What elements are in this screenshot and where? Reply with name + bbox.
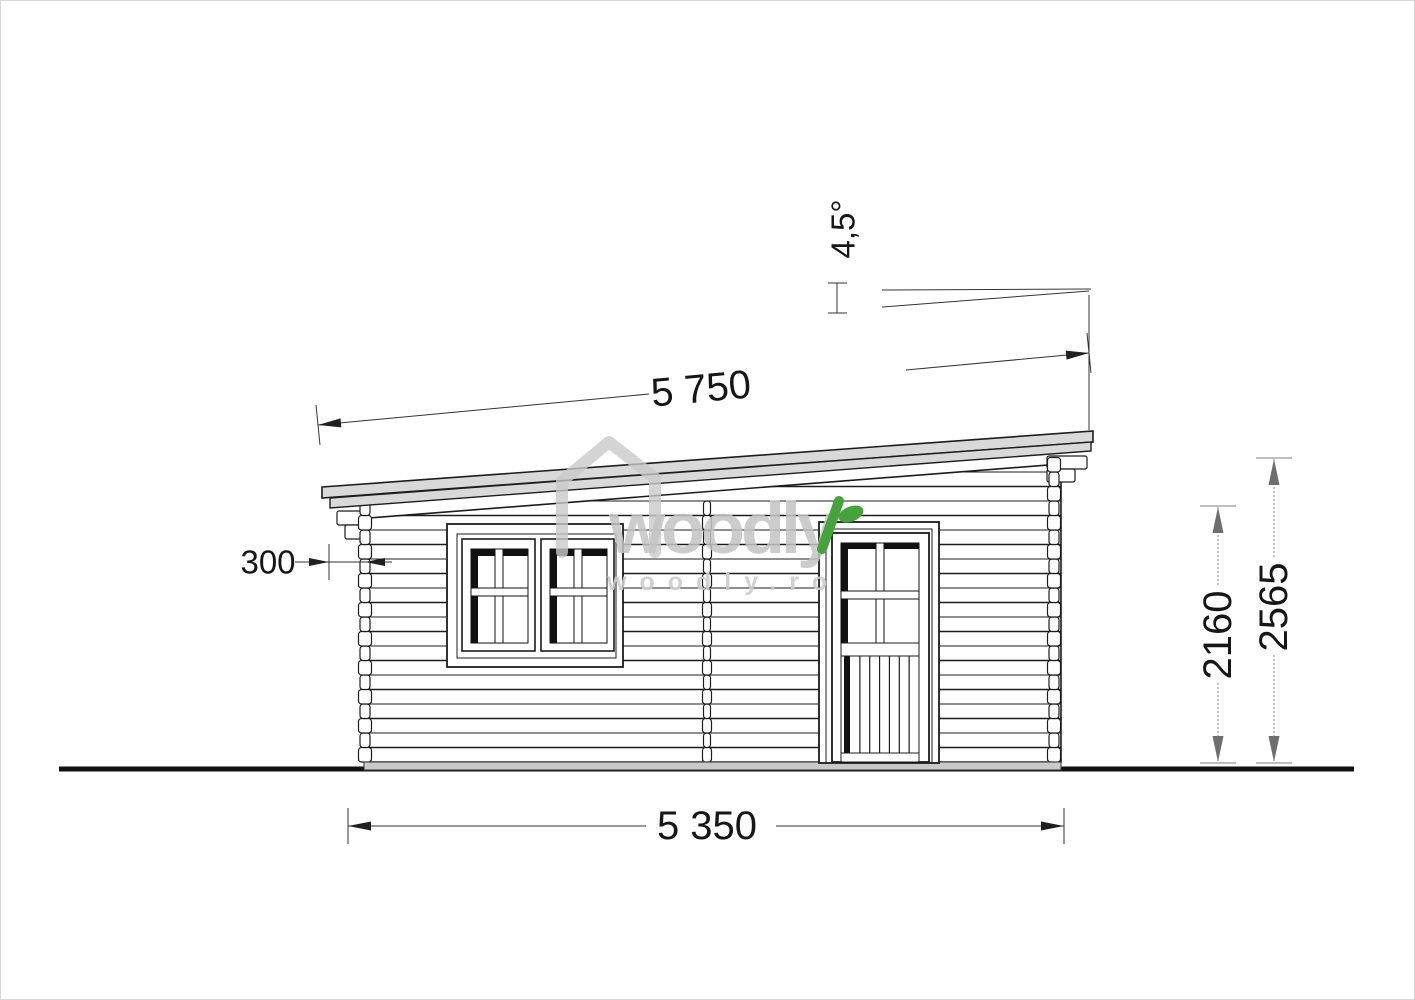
window-rail [550,588,607,596]
panel-shadow [844,656,850,753]
entrance-door [819,522,939,763]
log-end [360,617,370,632]
log-end [1049,646,1059,661]
log-end [1048,661,1061,676]
log-end [359,690,372,705]
log-end [703,748,712,763]
dim-label-roof-angle: 4,5° [825,199,862,258]
dim-arrow [1041,822,1064,831]
log-end [1048,690,1061,705]
window-left-sash [462,539,535,651]
log-end [1048,545,1061,560]
dimension-wall-height: 2160 [1196,506,1240,763]
log-end [704,646,711,661]
log-end [359,574,372,589]
log-end [359,748,372,763]
log-end [1049,472,1059,487]
dim-arrow [1066,351,1089,360]
log-end [1049,733,1059,748]
dim-arrow [309,558,329,566]
log-end [1049,675,1059,690]
log-end [1049,588,1059,603]
dim-arrow [348,822,371,831]
log-end [1048,719,1061,734]
dim-label-wall-length: 5 350 [657,804,757,848]
log-end [703,632,712,647]
double-window [447,524,623,667]
log-end [360,704,370,719]
dim-label-roof-length: 5 750 [649,362,753,415]
log-end [360,733,370,748]
watermark-brand: woodly [608,489,837,569]
log-end [359,603,372,618]
log-end [703,603,712,618]
dimension-roof-length: 5 750 [316,295,1091,445]
dimension-wall-length: 5 350 [348,804,1064,848]
dimension-roof-angle: 4,5° [825,199,1092,313]
watermark-domain: woodly.ro [606,568,840,596]
log-end [1048,487,1061,502]
dim-arrow [1213,507,1224,533]
dim-label-overhang: 300 [240,544,295,581]
log-end [1049,617,1059,632]
log-end [704,617,711,632]
log-end [1048,632,1061,647]
log-end [1048,748,1061,763]
door-mid-rail [841,643,919,656]
cabin-facade-drawing: woodly woodly.ro 5 750 4,5° 300 2160 [1,1,1415,1000]
left-log-end-column [359,501,372,762]
log-end [703,661,712,676]
log-end [704,733,711,748]
dim-label-overall-height: 2565 [1252,563,1296,652]
log-end [360,559,370,574]
log-end [1049,704,1059,719]
window-rail [471,588,528,596]
dim-label-wall-height: 2160 [1196,591,1240,680]
log-end [703,690,712,705]
log-end [1049,501,1059,516]
log-end [360,646,370,661]
slope-wedge-line [882,291,1089,307]
log-end [360,588,370,603]
log-end [703,719,712,734]
drawing-page: woodly woodly.ro 5 750 4,5° 300 2160 [0,0,1415,1000]
log-end [359,516,372,531]
log-end [1049,530,1059,545]
log-end [704,704,711,719]
door-rail [841,591,919,599]
dim-arrow [1213,736,1224,762]
log-end [359,661,372,676]
log-end [359,719,372,734]
dim-arrow [318,418,341,427]
log-end [360,675,370,690]
log-end [1048,603,1061,618]
log-end [1048,458,1061,473]
log-end [359,632,372,647]
foundation-strip [364,762,1061,770]
log-end [1048,574,1061,589]
dim-arrow [1269,736,1280,762]
dim-arrow [1269,459,1280,485]
log-end [360,530,370,545]
log-end [359,545,372,560]
log-end [1048,516,1061,531]
window-right-sash [541,539,614,651]
log-end [704,675,711,690]
log-end [1049,559,1059,574]
dimension-overall-height: 2565 [1252,458,1296,763]
right-log-end-column [1048,458,1061,763]
door-bottom-rail [841,753,919,762]
